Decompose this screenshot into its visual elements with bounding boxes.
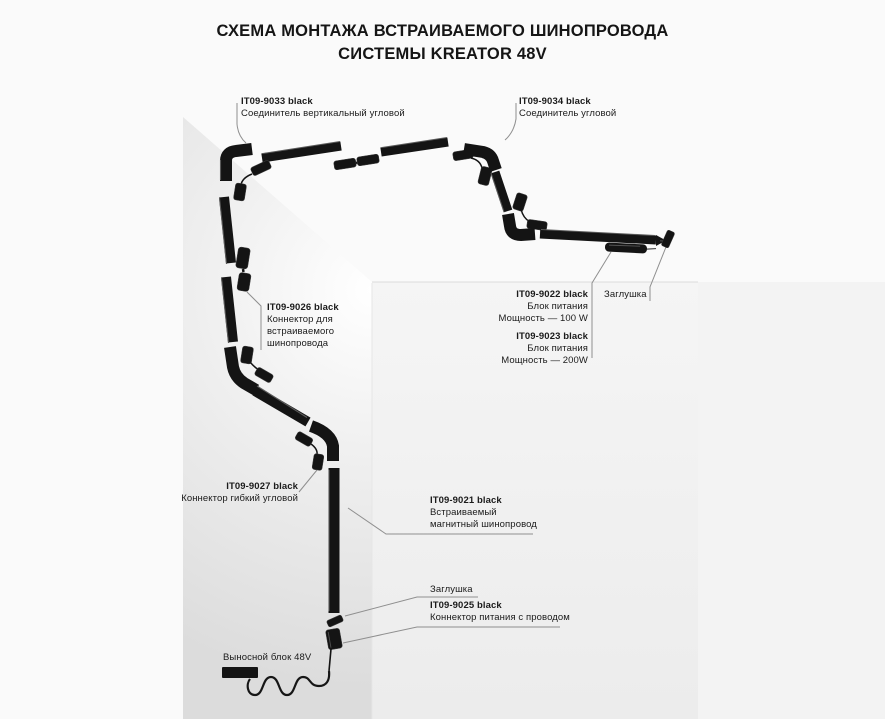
part-desc: Соединитель угловой xyxy=(519,108,616,120)
part-desc: Коннектор для xyxy=(267,314,339,326)
part-desc: магнитный шинопровод xyxy=(430,519,537,531)
installation-diagram-page: СХЕМА МОНТАЖА ВСТРАИВАЕМОГО ШИНОПРОВОДА … xyxy=(0,0,885,719)
label-psu-group: IT09-9022 black Блок питания Мощность — … xyxy=(428,289,588,367)
label-it09-9026: IT09-9026 black Коннектор для встраиваем… xyxy=(267,302,339,350)
part-desc: Встраиваемый xyxy=(430,507,537,519)
part-desc: Мощность — 100 W xyxy=(428,313,588,325)
part-desc: Заглушка xyxy=(604,289,647,300)
label-it09-9023: IT09-9023 black Блок питания Мощность — … xyxy=(428,331,588,367)
label-it09-9027: IT09-9027 black Коннектор гибкий угловой xyxy=(138,481,298,505)
label-remote-block: Выносной блок 48V xyxy=(223,652,311,664)
connector-link xyxy=(243,269,244,272)
label-endcap-top: Заглушка xyxy=(604,289,647,301)
part-desc: Коннектор питания с проводом xyxy=(430,612,570,624)
label-it09-9022: IT09-9022 black Блок питания Мощность — … xyxy=(428,289,588,325)
part-code: IT09-9025 black xyxy=(430,600,570,612)
part-code: IT09-9021 black xyxy=(430,495,537,507)
right-wall-plane xyxy=(698,282,885,719)
label-it09-9033: IT09-9033 black Соединитель вертикальный… xyxy=(241,96,405,120)
label-it09-9034: IT09-9034 black Соединитель угловой xyxy=(519,96,616,120)
label-it09-9025: IT09-9025 black Коннектор питания с пров… xyxy=(430,600,570,624)
recessed-track-connector-shape xyxy=(237,272,252,292)
part-desc: Коннектор гибкий угловой xyxy=(138,493,298,505)
flex-corner-connector-shape xyxy=(312,453,324,470)
part-code: IT09-9033 black xyxy=(241,96,405,108)
part-desc: Заглушка xyxy=(430,584,473,595)
track-connector xyxy=(233,183,247,202)
page-title: СХЕМА МОНТАЖА ВСТРАИВАЕМОГО ШИНОПРОВОДА … xyxy=(0,20,885,66)
part-desc: Соединитель вертикальный угловой xyxy=(241,108,405,120)
title-line-2: СИСТЕМЫ KREATOR 48V xyxy=(0,43,885,66)
part-desc: Блок питания xyxy=(428,301,588,313)
label-it09-9021: IT09-9021 black Встраиваемый магнитный ш… xyxy=(430,495,537,531)
part-code: IT09-9034 black xyxy=(519,96,616,108)
part-desc: Мощность — 200W xyxy=(428,355,588,367)
part-code: IT09-9026 black xyxy=(267,302,339,314)
track-connector xyxy=(240,346,254,365)
remote-block-shape xyxy=(222,667,258,678)
part-code: IT09-9027 black xyxy=(138,481,298,493)
title-line-1: СХЕМА МОНТАЖА ВСТРАИВАЕМОГО ШИНОПРОВОДА xyxy=(0,20,885,43)
part-desc: Блок питания xyxy=(428,343,588,355)
label-endcap-bottom: Заглушка xyxy=(430,584,473,596)
part-desc: встраиваемого xyxy=(267,326,339,338)
part-desc: Выносной блок 48V xyxy=(223,652,311,663)
part-desc: шинопровода xyxy=(267,338,339,350)
part-code: IT09-9023 black xyxy=(428,331,588,343)
part-code: IT09-9022 black xyxy=(428,289,588,301)
